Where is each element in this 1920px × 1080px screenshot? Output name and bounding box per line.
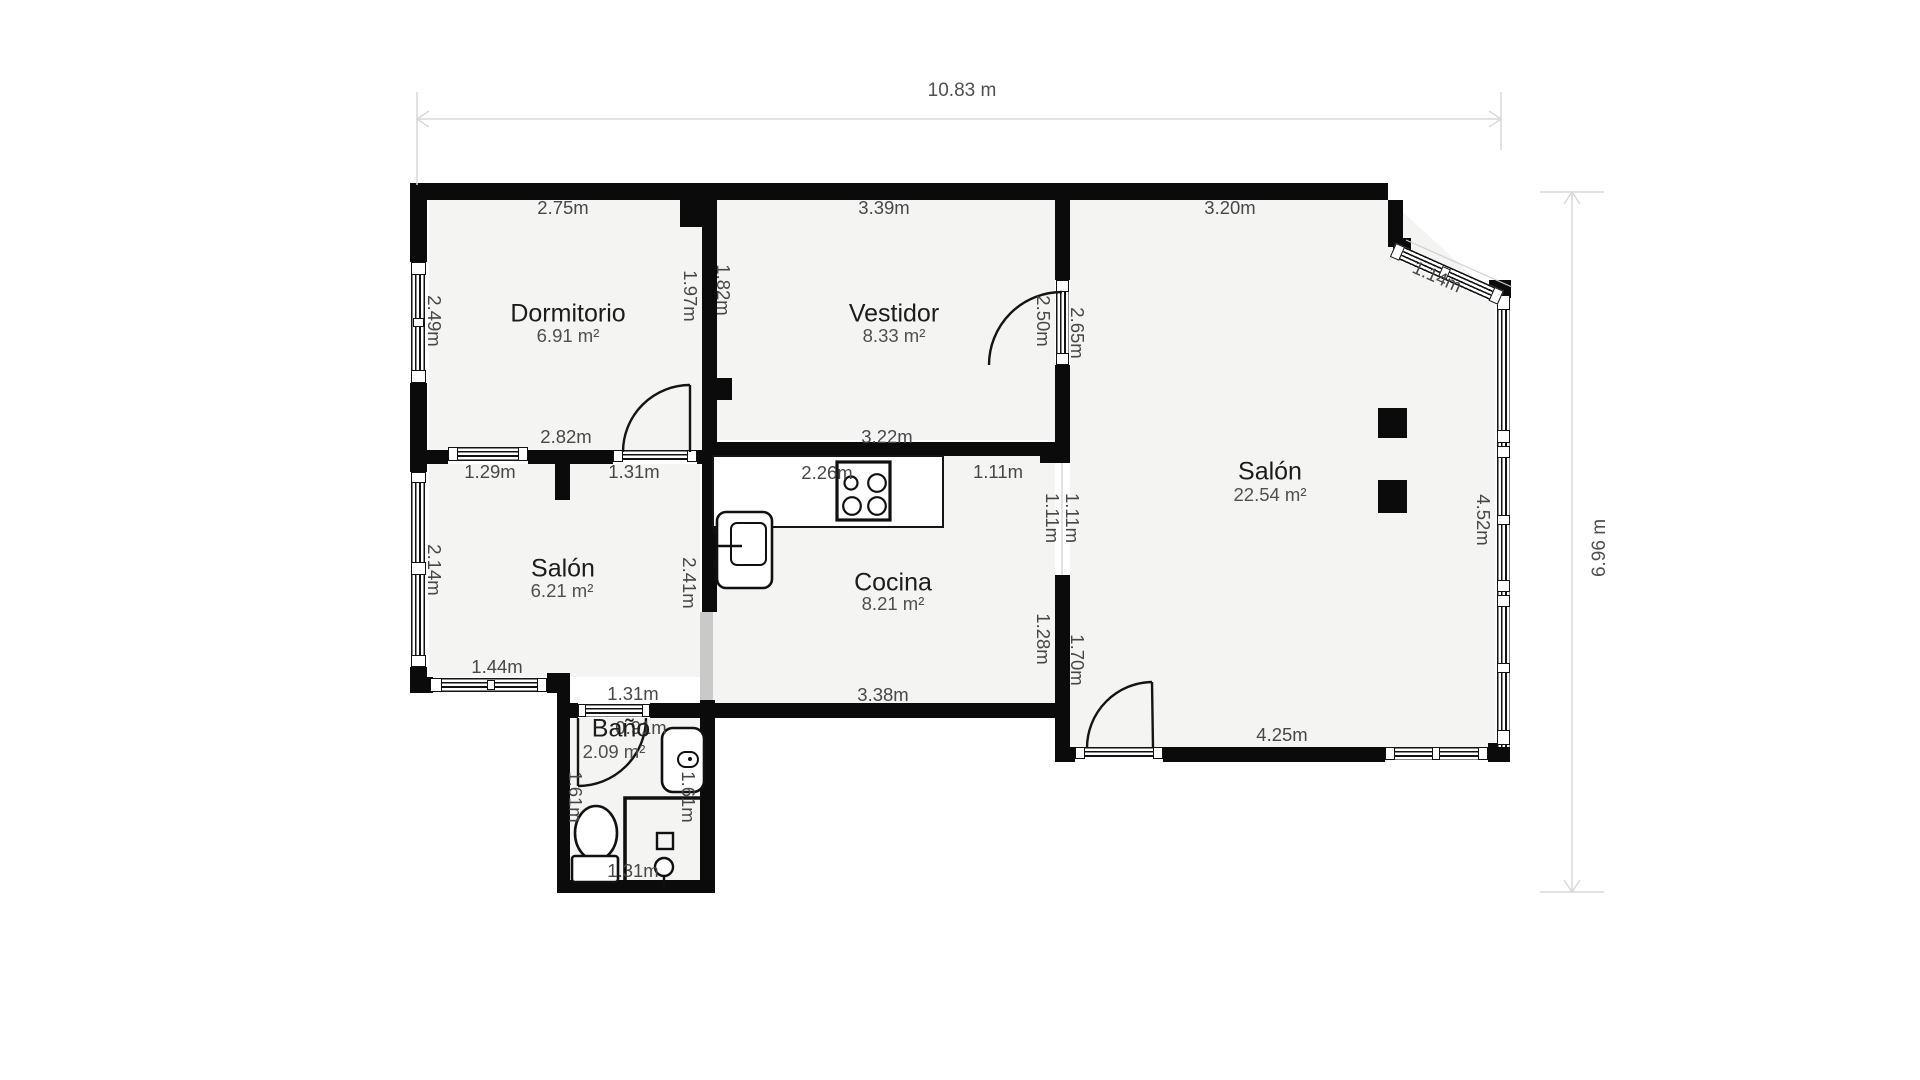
dim-opening-right: 1.11m (1061, 493, 1083, 543)
dim-cocina-wall: 1.28m (1032, 613, 1054, 664)
dim-cocina-opening-top: 1.11m (973, 461, 1023, 483)
dim-dormitorio-right: 1.97m (679, 270, 701, 321)
dim-opening-left: 1.11m (1041, 493, 1063, 543)
dim-cocina-top: 2.26m (801, 462, 852, 484)
area-dormitorio: 6.91 m² (537, 325, 600, 347)
dim-salon-top: 3.20m (1204, 197, 1255, 219)
dim-salon2-left: 2.14m (423, 544, 445, 595)
dim-bano-left: 1.61m (564, 771, 586, 822)
dim-bano-right: 1.61m (677, 771, 699, 822)
kitchen-sink-icon (713, 512, 772, 588)
door-dormitorio (623, 385, 690, 452)
pillar-icons (1378, 408, 1407, 513)
floor-plan: 10.83 m 6.96 m 2.75m 3.39m 3.20m 2.49m 1… (0, 0, 1920, 1080)
area-bano: 2.09 m² (583, 741, 646, 763)
plan-overlay (0, 0, 1920, 1080)
area-cocina: 8.21 m² (862, 593, 925, 615)
dim-salon2-window-top: 1.29m (464, 461, 515, 483)
overall-height-label: 6.96 m (1589, 519, 1611, 577)
overall-width-label: 10.83 m (928, 80, 997, 102)
dim-salon2-bottom: 1.44m (471, 656, 522, 678)
dim-bano-bottom: 1.31m (607, 860, 658, 882)
dim-dormitorio-door: 1.31m (608, 461, 659, 483)
dim-salon2-right: 2.41m (678, 557, 700, 608)
dim-salon-bottom: 4.25m (1256, 724, 1307, 746)
dim-salon-wall-upper: 2.65m (1066, 307, 1088, 358)
dim-salon-wall-lower: 1.70m (1066, 634, 1088, 685)
label-bano: Baño (592, 715, 650, 744)
label-salon-grande: Salón (1238, 458, 1302, 487)
area-salon-grande: 22.54 m² (1233, 484, 1306, 506)
door-salon (1087, 682, 1153, 748)
dim-dormitorio-top: 2.75m (537, 197, 588, 219)
area-salon-pequeno: 6.21 m² (531, 580, 594, 602)
area-vestidor: 8.33 m² (863, 325, 926, 347)
dim-vestidor-top: 3.39m (858, 197, 909, 219)
dim-dividing-wall: 1.82m (712, 264, 734, 315)
dim-dormitorio-bottom: 2.82m (540, 426, 591, 448)
dim-vestidor-bottom: 3.22m (861, 426, 912, 448)
dim-vestidor-right: 2.50m (1032, 295, 1054, 346)
dim-salon-right: 4.52m (1472, 494, 1494, 545)
dimension-line-width (417, 92, 1501, 185)
dim-bano-top: 1.31m (607, 683, 658, 705)
dim-dormitorio-left: 2.49m (423, 295, 445, 346)
dim-cocina-bottom: 3.38m (857, 684, 908, 706)
